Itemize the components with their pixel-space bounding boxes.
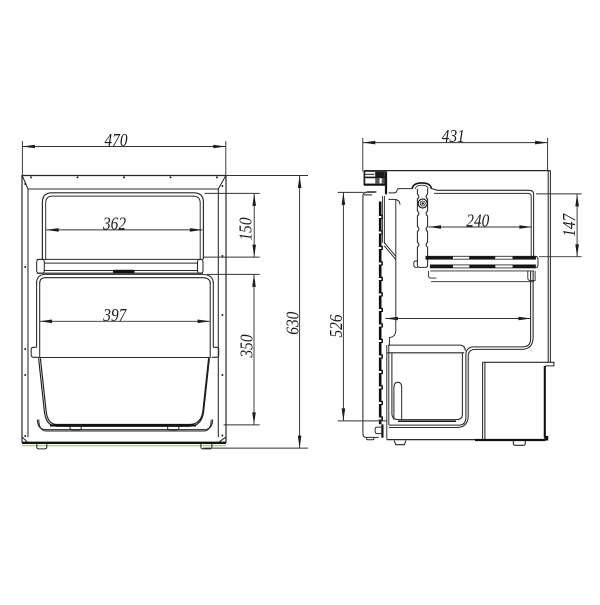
svg-text:397: 397: [102, 305, 127, 325]
svg-text:150: 150: [236, 217, 256, 240]
svg-text:147: 147: [559, 213, 579, 237]
svg-text:431: 431: [442, 126, 465, 146]
svg-text:240: 240: [466, 211, 489, 231]
svg-text:350: 350: [236, 334, 256, 358]
svg-text:470: 470: [105, 130, 128, 150]
svg-text:630: 630: [283, 311, 303, 334]
svg-text:526: 526: [326, 314, 346, 337]
svg-text:362: 362: [102, 214, 126, 234]
